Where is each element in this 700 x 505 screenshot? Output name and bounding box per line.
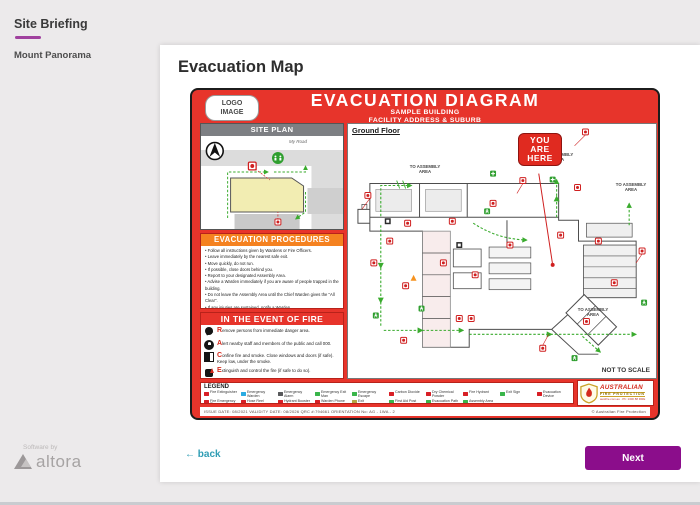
- legend-swatch-icon: [500, 392, 505, 397]
- fire-step: Extinguish and control the fire (if safe…: [204, 367, 340, 377]
- sidebar-item-mount-panorama[interactable]: Mount Panorama: [14, 50, 91, 61]
- legend-item: Warden Phone: [315, 400, 348, 405]
- app-title: Site Briefing: [14, 17, 88, 31]
- afp-logo-panel: AUSTRALIAN FIRE PROTECTION austfire.com.…: [577, 380, 654, 406]
- legend-row-2: Fire Emergency Plan Hose Reel Hydrant Bo…: [204, 400, 570, 405]
- diagram-meta: ISSUE DATE: 08/2021 VALIDITY DATE: 08/20…: [204, 409, 395, 414]
- legend-swatch-icon: [241, 392, 246, 397]
- legend-item: Carbon Dioxide: [389, 391, 422, 399]
- fire-step: Confine fire and smoke. Close windows an…: [204, 352, 340, 365]
- not-to-scale-label: NOT TO SCALE: [602, 367, 650, 374]
- fire-step: Alert nearby staff and members of the pu…: [204, 340, 340, 350]
- procedures-title: EVACUATION PROCEDURES: [201, 234, 343, 246]
- legend-swatch-icon: [241, 400, 246, 404]
- fire-title: IN THE EVENT OF FIRE: [201, 313, 343, 325]
- afp-shield-icon: [580, 383, 598, 404]
- legend-swatch-icon: [204, 392, 209, 397]
- legend-item: Exit: [352, 400, 385, 405]
- main-panel: Evacuation Map EVACUATION DIAGRAM SAMPLE…: [160, 45, 700, 482]
- legend-item: Emergency Escape: [352, 391, 385, 399]
- fire-step-icon: [204, 340, 214, 350]
- procedure-item: If any injuries are sustained, notify a …: [205, 305, 340, 309]
- legend-item: Evacuation Device: [537, 391, 570, 399]
- back-link[interactable]: ← back: [185, 449, 221, 460]
- legend-item: Assembly Area: [463, 400, 496, 405]
- software-brand: Software by altora: [14, 444, 82, 469]
- event-of-fire-panel: IN THE EVENT OF FIRE Remove persons from…: [200, 312, 344, 379]
- legend-swatch-icon: [463, 400, 468, 404]
- legend-swatch-icon: [426, 392, 431, 397]
- legend-item: Emergency Alarm: [278, 391, 311, 399]
- legend-item: Exit Sign: [500, 391, 533, 399]
- fire-step-icon: [204, 367, 214, 377]
- diagram-header: EVACUATION DIAGRAM SAMPLE BUILDING FACIL…: [192, 90, 658, 123]
- assembly-label: TO ASSEMBLY AREA: [612, 182, 650, 192]
- altora-logo-icon: [14, 454, 32, 469]
- diagram-footer: ISSUE DATE: 08/2021 VALIDITY DATE: 08/20…: [200, 407, 650, 416]
- afp-contact: austfire.com.au · Ph: 1300 88 FIRE: [600, 398, 645, 401]
- legend-row-1: Fire Extinguisher Emergency Warden Emerg…: [204, 391, 570, 399]
- legend-swatch-icon: [315, 400, 320, 404]
- legend-item: Fire Emergency Plan: [204, 400, 237, 405]
- site-plan-title: SITE PLAN: [201, 124, 343, 136]
- diagram-title: EVACUATION DIAGRAM: [192, 91, 658, 109]
- brand-prefix: Software by: [23, 444, 82, 451]
- legend-item: Emergency Warden: [241, 391, 274, 399]
- legend-swatch-icon: [537, 392, 542, 397]
- legend-swatch-icon: [389, 392, 394, 397]
- fire-step-icon: [204, 327, 214, 337]
- legend-item: Fire Hydrant: [463, 391, 496, 399]
- evacuation-diagram: EVACUATION DIAGRAM SAMPLE BUILDING FACIL…: [190, 88, 660, 420]
- procedures-list: Follow all instructions given by Wardens…: [201, 246, 343, 309]
- diagram-subtitle-building: SAMPLE BUILDING: [192, 109, 658, 117]
- back-arrow-icon: ←: [185, 449, 195, 460]
- diagram-copyright: © Australian Fire Protection: [592, 409, 646, 414]
- legend-item: Fire Extinguisher: [204, 391, 237, 399]
- site-plan-map: [201, 136, 343, 230]
- logo-placeholder: LOGO IMAGE: [205, 95, 259, 121]
- legend-swatch-icon: [315, 392, 320, 397]
- legend-swatch-icon: [204, 400, 209, 404]
- legend-panel: LEGEND Fire Extinguisher Emergency Warde…: [200, 382, 574, 404]
- site-plan-panel: SITE PLAN: [200, 123, 344, 230]
- legend-swatch-icon: [463, 392, 468, 397]
- legend-swatch-icon: [426, 400, 431, 404]
- procedure-item: Do not leave the Assembly Area until the…: [205, 292, 340, 305]
- legend-swatch-icon: [389, 400, 394, 404]
- page-title: Evacuation Map: [178, 58, 304, 77]
- title-underline: [15, 36, 41, 39]
- legend-item: First Aid Post: [389, 400, 422, 405]
- legend-swatch-icon: [352, 400, 357, 404]
- next-button[interactable]: Next: [585, 446, 681, 470]
- brand-name: altora: [36, 454, 82, 469]
- floor-plan-panel: Ground Floor TO ASSEMBLY AREA TO ASSEMBL…: [347, 123, 657, 379]
- procedure-item: Advise a Warden immediately if you are a…: [205, 279, 340, 292]
- road-label: My Road: [289, 139, 307, 144]
- legend-item: Hydrant Booster: [278, 400, 311, 405]
- you-are-here-marker: YOU ARE HERE: [518, 133, 562, 166]
- fire-list: Remove persons from immediate danger are…: [201, 325, 343, 377]
- fire-step-icon: [204, 352, 214, 362]
- afp-name: AUSTRALIAN: [600, 385, 645, 391]
- assembly-label: TO ASSEMBLY AREA: [574, 307, 612, 317]
- sidebar: Site Briefing Mount Panorama: [0, 0, 160, 505]
- assembly-label: TO ASSEMBLY AREA: [406, 164, 444, 174]
- floor-title: Ground Floor: [352, 126, 400, 135]
- legend-item: Emergency Exit Man: [315, 391, 348, 399]
- legend-item: Hose Reel: [241, 400, 274, 405]
- walls: [358, 184, 636, 355]
- fire-step: Remove persons from immediate danger are…: [204, 327, 340, 337]
- legend-swatch-icon: [278, 392, 283, 397]
- evacuation-procedures-panel: EVACUATION PROCEDURES Follow all instruc…: [200, 233, 344, 309]
- legend-swatch-icon: [278, 400, 283, 404]
- floor-plan-svg: [348, 124, 656, 378]
- legend-swatch-icon: [352, 392, 357, 397]
- legend-item: Dry Chemical Powder: [426, 391, 459, 399]
- legend-item: Evacuation Path: [426, 400, 459, 405]
